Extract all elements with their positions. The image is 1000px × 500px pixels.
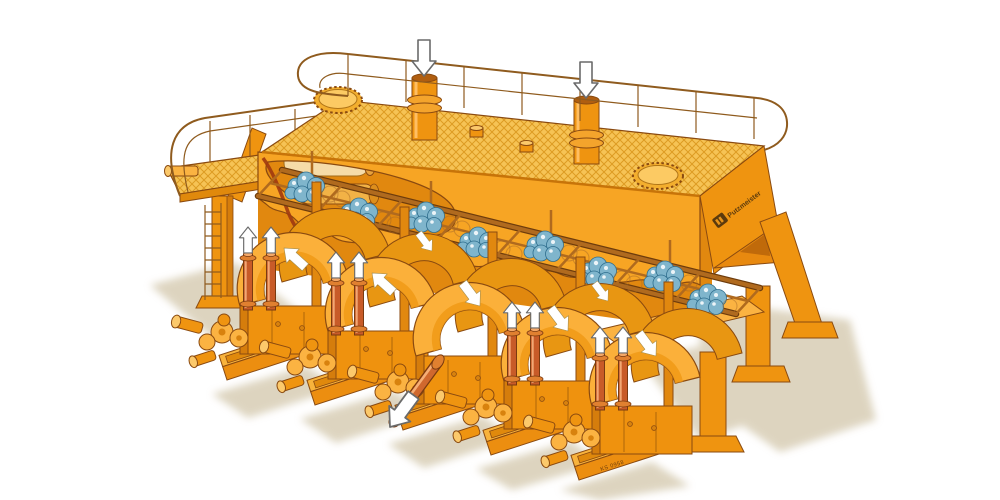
support-leg [700,352,726,440]
leg-foot-plate [684,436,744,452]
leg-foot-plate [782,322,838,338]
inlet-pipe [570,96,604,164]
illustration-stage: Putzmeister [0,0,1000,500]
manhole-cover [314,87,362,113]
manhole-cover [633,163,683,189]
machine-illustration: Putzmeister [0,0,1000,500]
leg-foot-plate [732,366,790,382]
